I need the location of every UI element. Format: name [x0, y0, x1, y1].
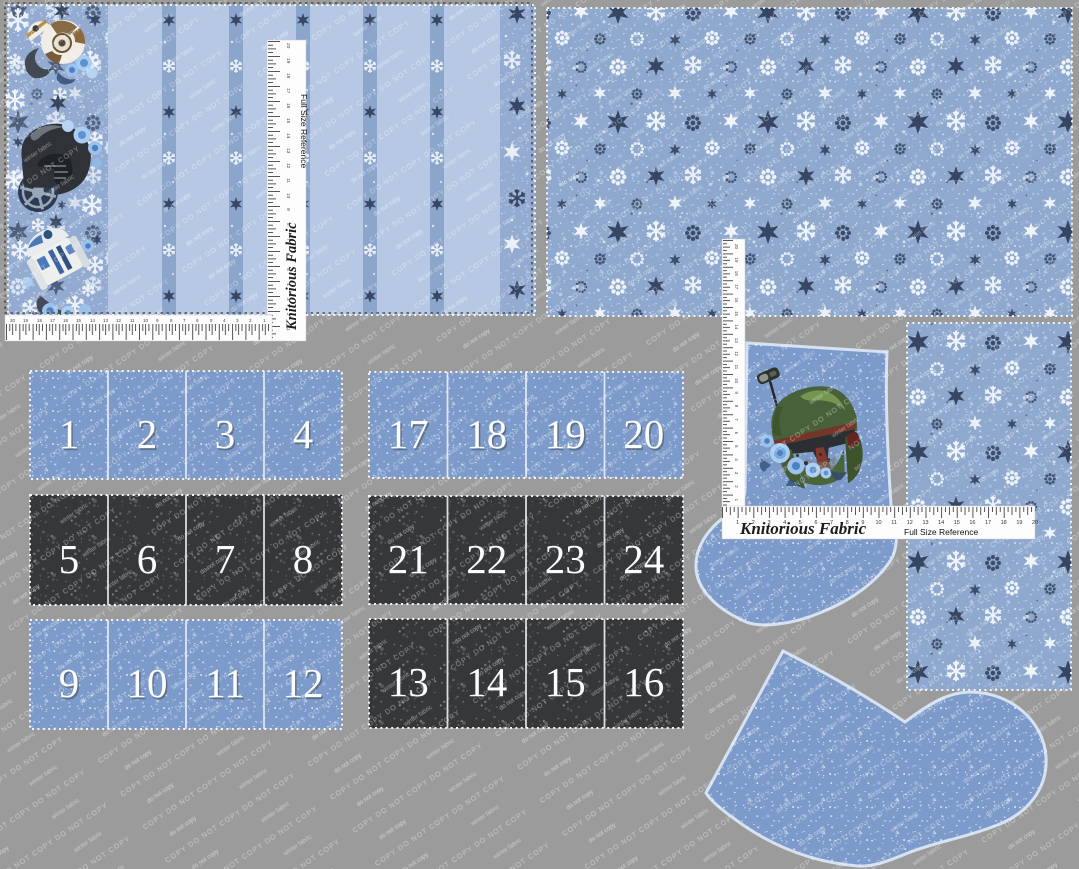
- svg-text:1: 1: [736, 520, 739, 526]
- svg-text:14: 14: [466, 659, 507, 705]
- svg-text:15: 15: [285, 118, 291, 124]
- svg-text:12: 12: [116, 318, 122, 323]
- svg-text:10: 10: [285, 193, 291, 199]
- svg-text:24: 24: [623, 536, 664, 582]
- svg-text:13: 13: [922, 520, 928, 526]
- svg-text:5: 5: [210, 318, 213, 323]
- svg-text:19: 19: [23, 318, 29, 323]
- svg-text:19: 19: [285, 58, 291, 64]
- svg-text:10: 10: [143, 318, 149, 323]
- svg-text:19: 19: [1016, 520, 1022, 526]
- svg-text:14: 14: [285, 133, 291, 139]
- svg-text:16: 16: [285, 103, 291, 109]
- svg-text:14: 14: [90, 318, 96, 323]
- svg-text:Knitorious Fabric: Knitorious Fabric: [284, 222, 300, 331]
- svg-text:3: 3: [215, 411, 236, 457]
- svg-text:20: 20: [285, 43, 291, 49]
- svg-text:20: 20: [10, 318, 16, 323]
- svg-text:Full Size Reference: Full Size Reference: [299, 94, 309, 168]
- svg-text:6: 6: [196, 318, 199, 323]
- svg-text:12: 12: [283, 660, 324, 706]
- svg-text:13: 13: [388, 659, 429, 705]
- svg-text:16: 16: [969, 520, 975, 526]
- svg-text:6: 6: [137, 536, 158, 582]
- svg-text:12: 12: [734, 351, 739, 356]
- svg-text:10: 10: [875, 520, 881, 526]
- svg-text:20: 20: [734, 244, 739, 249]
- svg-text:3: 3: [236, 318, 239, 323]
- svg-text:17: 17: [388, 411, 429, 457]
- svg-text:19: 19: [545, 411, 586, 457]
- svg-text:21: 21: [388, 536, 429, 582]
- svg-text:20: 20: [1032, 520, 1038, 526]
- svg-text:17: 17: [734, 284, 739, 289]
- svg-text:13: 13: [734, 338, 739, 343]
- svg-text:18: 18: [734, 271, 739, 276]
- svg-text:14: 14: [734, 324, 739, 329]
- svg-text:4: 4: [223, 318, 226, 323]
- svg-text:10: 10: [127, 660, 168, 706]
- svg-text:16: 16: [63, 318, 69, 323]
- svg-text:2: 2: [137, 411, 158, 457]
- svg-text:11: 11: [891, 520, 897, 526]
- svg-text:15: 15: [545, 659, 586, 705]
- svg-text:5: 5: [59, 536, 80, 582]
- svg-text:15: 15: [734, 311, 739, 316]
- svg-text:2: 2: [249, 318, 252, 323]
- svg-text:13: 13: [285, 148, 291, 154]
- svg-text:15: 15: [954, 520, 960, 526]
- svg-text:8: 8: [170, 318, 173, 323]
- svg-text:9: 9: [285, 208, 291, 211]
- svg-text:11: 11: [205, 660, 244, 706]
- svg-text:9: 9: [156, 318, 159, 323]
- svg-text:10: 10: [734, 378, 739, 383]
- svg-text:7: 7: [215, 536, 236, 582]
- svg-text:Full Size Reference: Full Size Reference: [904, 527, 978, 537]
- svg-text:17: 17: [285, 88, 291, 94]
- svg-text:1: 1: [59, 411, 80, 457]
- svg-text:7: 7: [183, 318, 186, 323]
- svg-text:16: 16: [734, 298, 739, 303]
- svg-text:18: 18: [466, 411, 507, 457]
- svg-text:18: 18: [37, 318, 43, 323]
- svg-text:20: 20: [623, 411, 664, 457]
- svg-text:22: 22: [466, 536, 507, 582]
- svg-text:11: 11: [130, 318, 135, 323]
- svg-text:12: 12: [285, 163, 291, 169]
- svg-text:16: 16: [623, 659, 664, 705]
- svg-text:11: 11: [734, 365, 739, 370]
- svg-text:15: 15: [76, 318, 82, 323]
- svg-text:17: 17: [50, 318, 56, 323]
- svg-text:1: 1: [263, 318, 266, 323]
- svg-text:11: 11: [285, 178, 291, 183]
- svg-text:8: 8: [293, 536, 314, 582]
- svg-text:18: 18: [285, 73, 291, 79]
- svg-text:Knitorious Fabric: Knitorious Fabric: [739, 519, 867, 538]
- svg-text:12: 12: [907, 520, 913, 526]
- svg-text:19: 19: [734, 257, 739, 262]
- svg-text:14: 14: [938, 520, 944, 526]
- svg-text:9: 9: [59, 660, 80, 706]
- svg-text:17: 17: [985, 520, 991, 526]
- svg-text:23: 23: [545, 536, 586, 582]
- svg-text:18: 18: [1001, 520, 1007, 526]
- svg-text:13: 13: [103, 318, 109, 323]
- svg-text:4: 4: [293, 411, 314, 457]
